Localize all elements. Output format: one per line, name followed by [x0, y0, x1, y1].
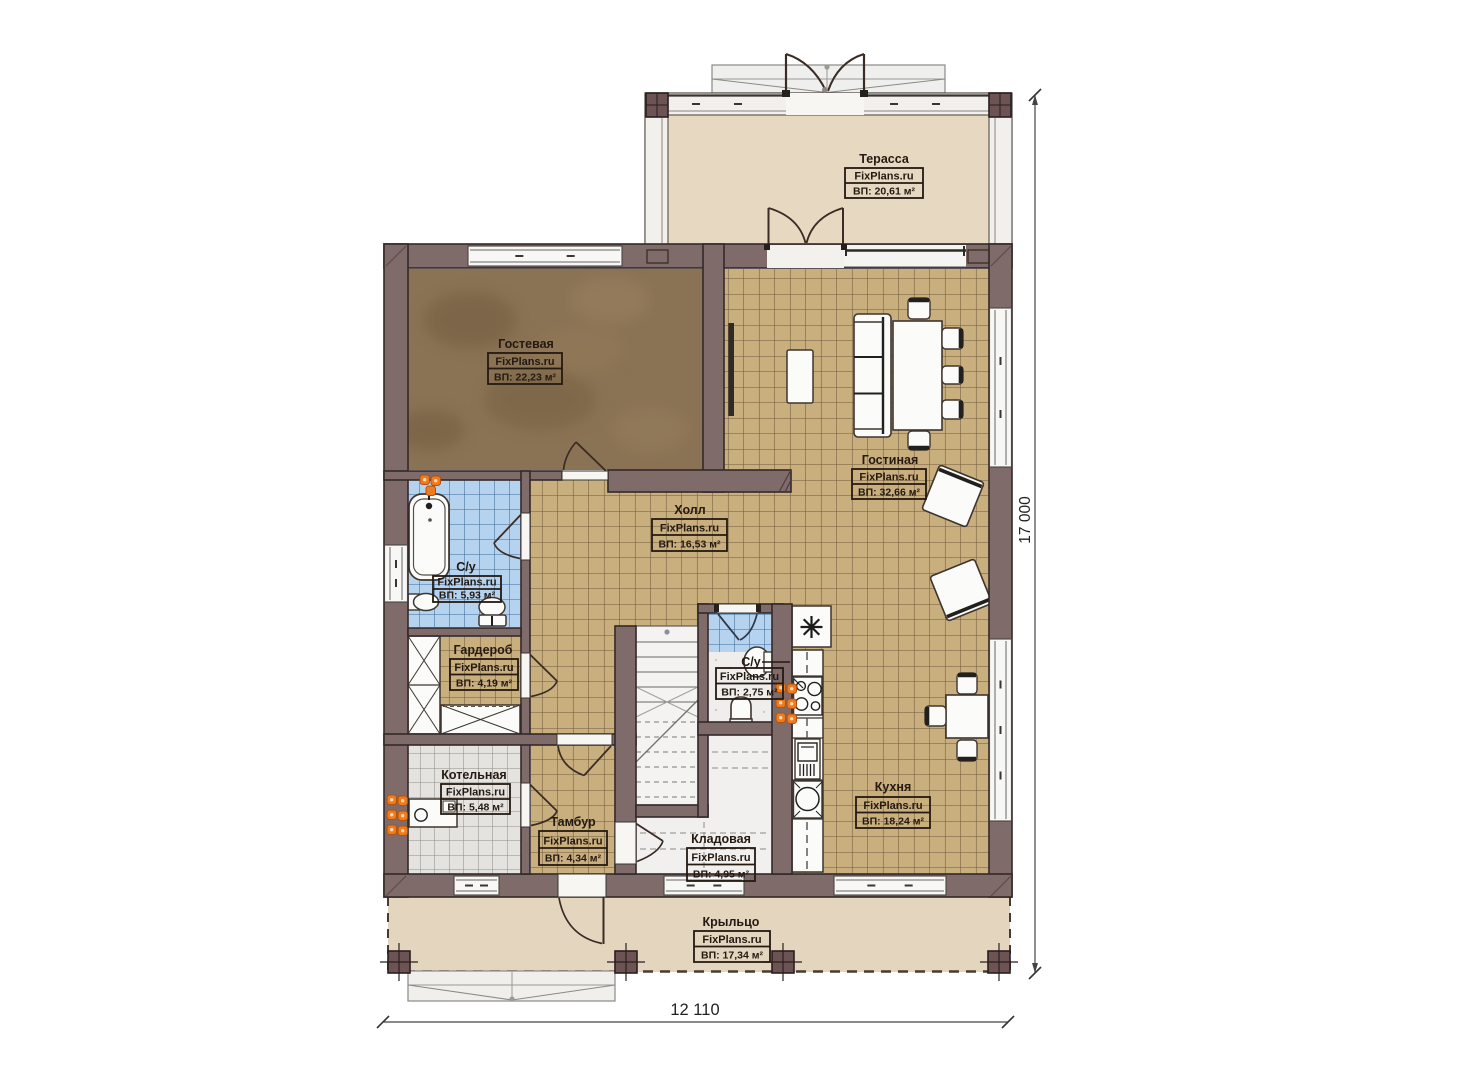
svg-text:ВП: 17,34 м²: ВП: 17,34 м² [701, 950, 764, 962]
svg-text:FixPlans.ru: FixPlans.ru [720, 671, 779, 683]
svg-text:Гардероб: Гардероб [453, 643, 512, 657]
svg-text:ВП: 4,34 м²: ВП: 4,34 м² [545, 853, 602, 865]
svg-text:Крыльцо: Крыльцо [703, 915, 760, 929]
svg-text:С/у: С/у [741, 655, 761, 669]
svg-text:ВП: 5,48 м²: ВП: 5,48 м² [447, 802, 504, 814]
svg-text:17 000: 17 000 [1017, 496, 1034, 544]
svg-text:Кухня: Кухня [875, 780, 912, 794]
svg-text:Холл: Холл [674, 503, 705, 517]
svg-text:ВП: 2,75 м²: ВП: 2,75 м² [721, 687, 778, 699]
svg-text:ВП: 16,53 м²: ВП: 16,53 м² [658, 539, 721, 551]
svg-text:ВП: 18,24 м²: ВП: 18,24 м² [862, 816, 925, 828]
svg-text:FixPlans.ru: FixPlans.ru [854, 171, 913, 183]
svg-text:ВП: 5,93 м²: ВП: 5,93 м² [439, 590, 496, 602]
svg-text:FixPlans.ru: FixPlans.ru [543, 836, 602, 848]
svg-text:FixPlans.ru: FixPlans.ru [702, 934, 761, 946]
svg-text:С/у: С/у [456, 560, 476, 574]
svg-text:FixPlans.ru: FixPlans.ru [691, 852, 750, 864]
svg-text:ВП: 4,95 м²: ВП: 4,95 м² [693, 869, 750, 881]
svg-text:ВП: 4,19 м²: ВП: 4,19 м² [456, 678, 513, 690]
svg-text:FixPlans.ru: FixPlans.ru [446, 787, 505, 799]
svg-text:Котельная: Котельная [441, 768, 506, 782]
svg-text:Кладовая: Кладовая [691, 832, 751, 846]
svg-text:ВП: 22,23 м²: ВП: 22,23 м² [494, 372, 557, 384]
svg-text:FixPlans.ru: FixPlans.ru [859, 472, 918, 484]
svg-text:FixPlans.ru: FixPlans.ru [660, 523, 719, 535]
svg-text:Гостевая: Гостевая [498, 337, 554, 351]
svg-text:Терасса: Терасса [859, 152, 910, 166]
svg-text:FixPlans.ru: FixPlans.ru [495, 356, 554, 368]
svg-text:12 110: 12 110 [670, 1001, 719, 1019]
svg-text:Гостиная: Гостиная [862, 453, 919, 467]
svg-text:FixPlans.ru: FixPlans.ru [437, 577, 496, 589]
svg-text:Тамбур: Тамбур [550, 815, 596, 829]
svg-text:ВП: 20,61 м²: ВП: 20,61 м² [853, 186, 916, 198]
svg-text:ВП: 32,66 м²: ВП: 32,66 м² [858, 487, 921, 499]
svg-text:FixPlans.ru: FixPlans.ru [454, 662, 513, 674]
svg-text:FixPlans.ru: FixPlans.ru [863, 800, 922, 812]
